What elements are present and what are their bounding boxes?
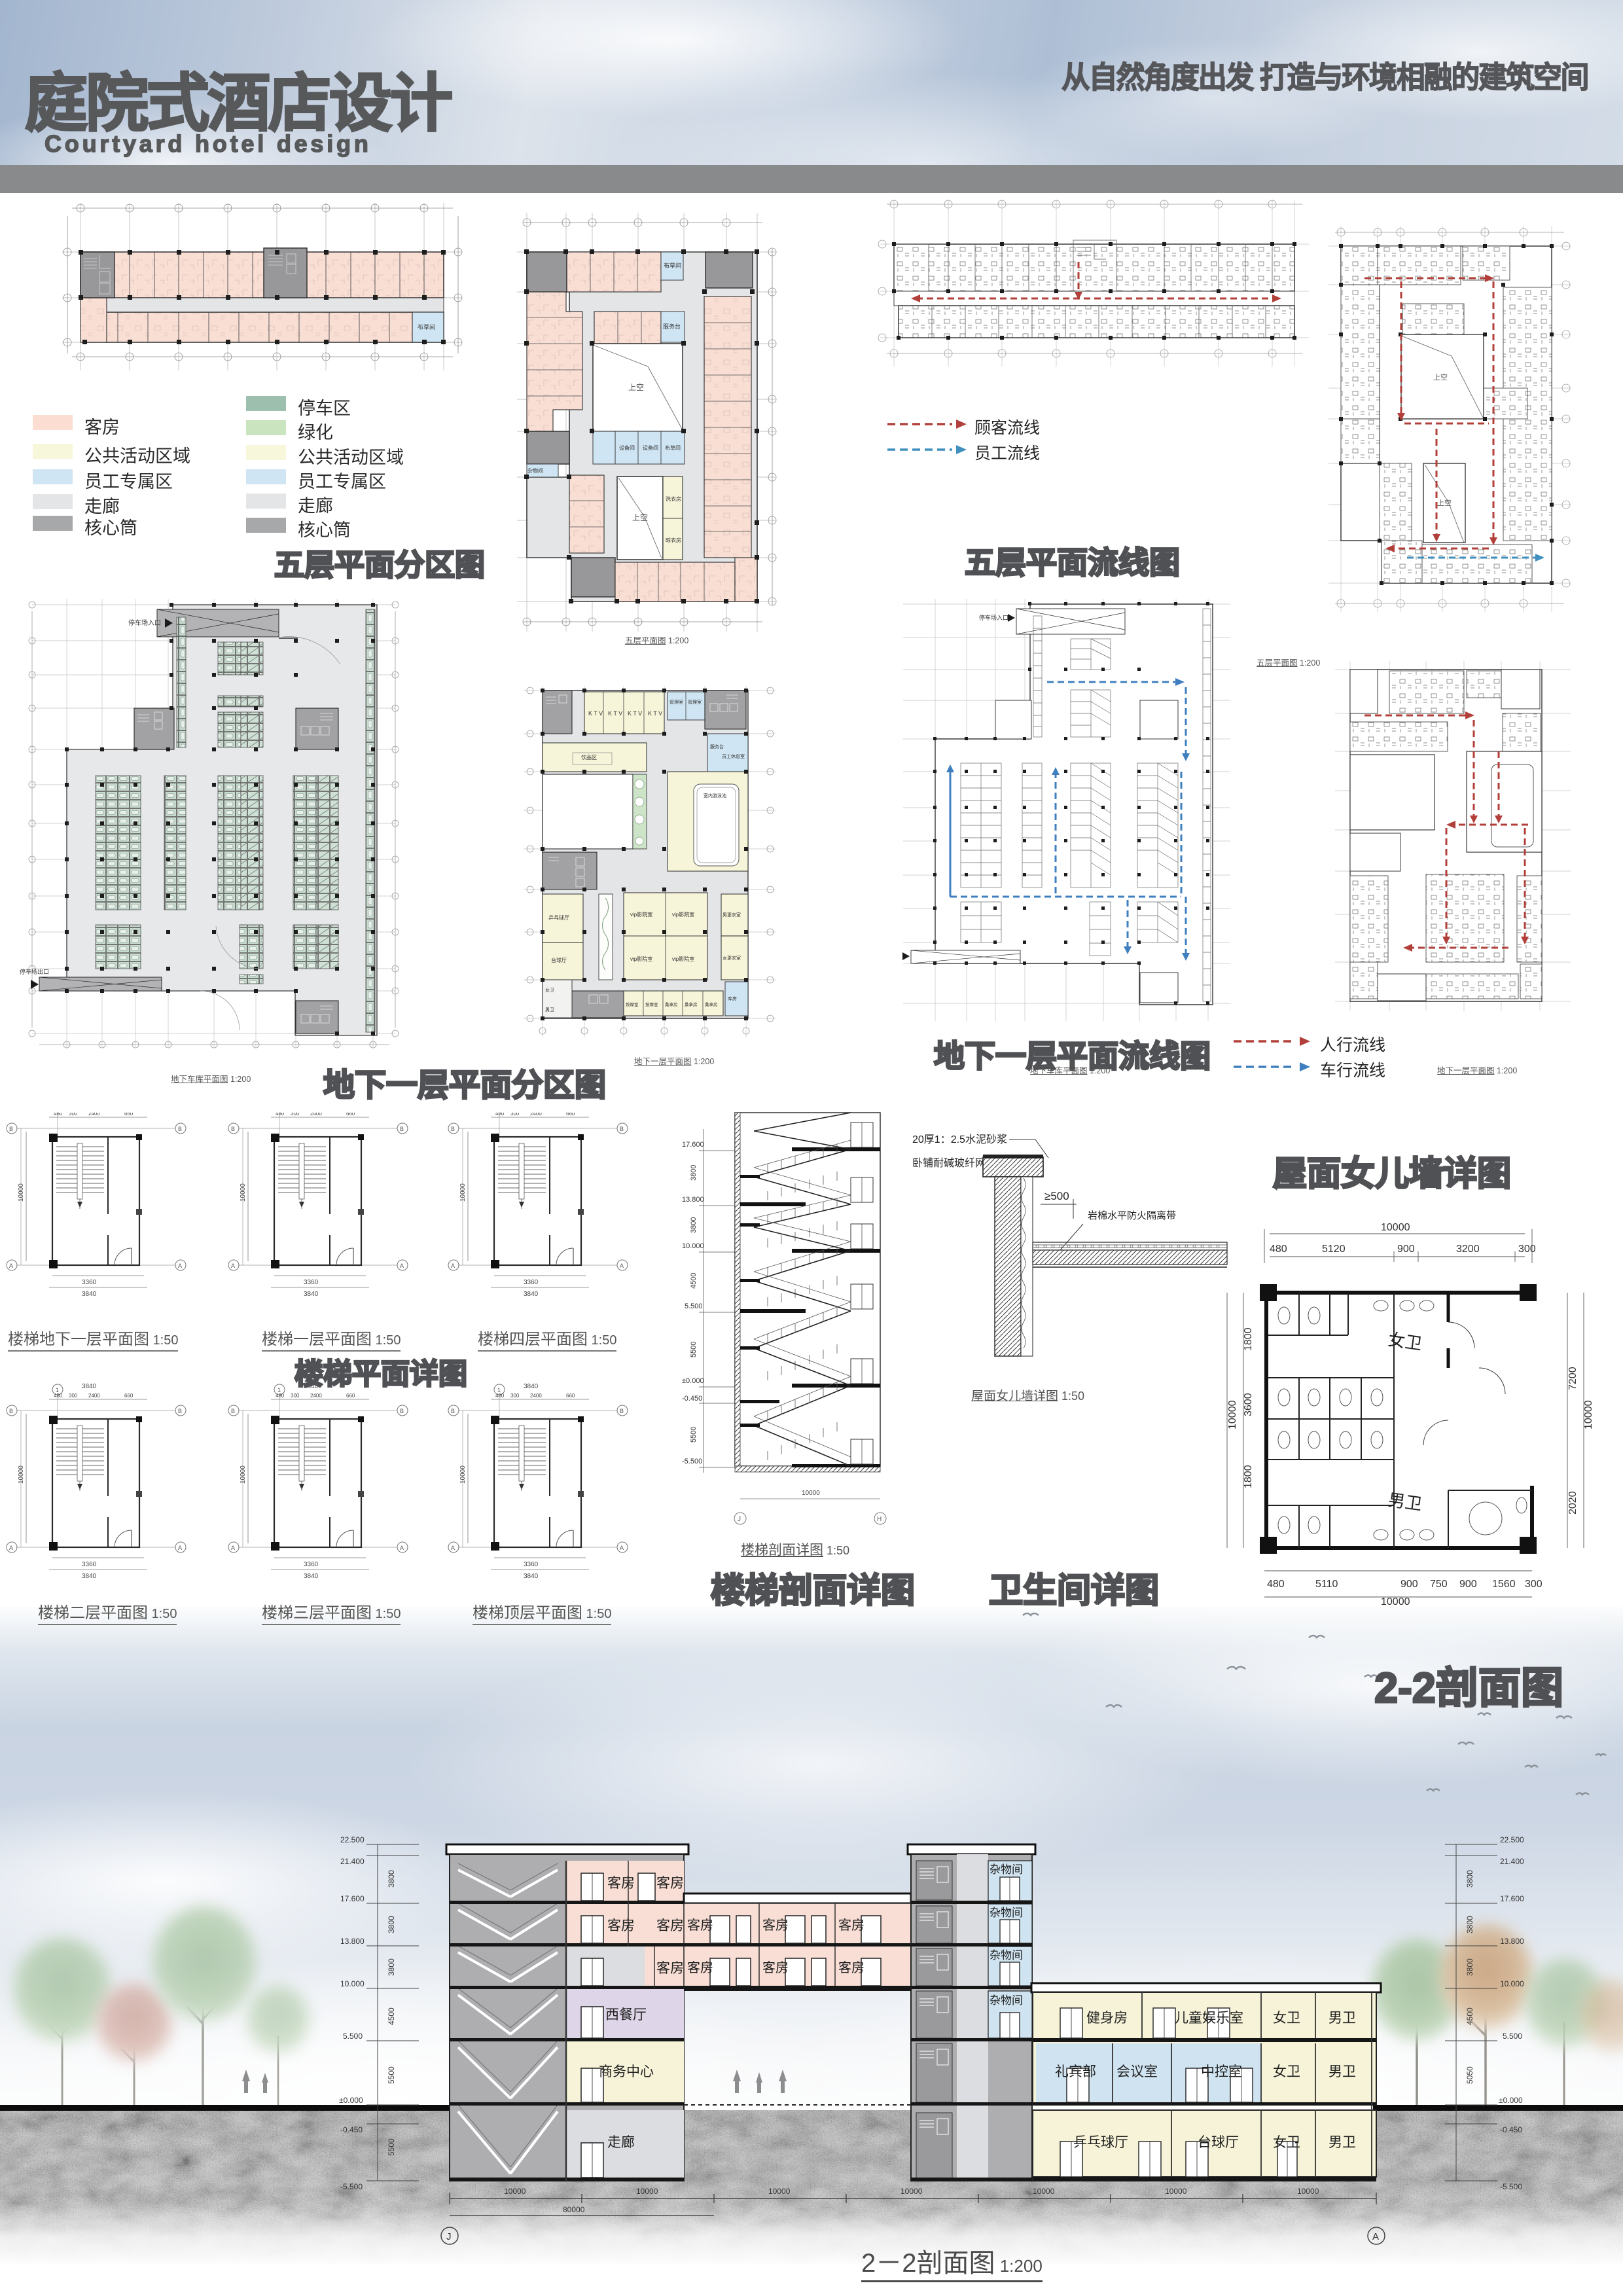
svg-text:2020: 2020	[1567, 1491, 1578, 1515]
svg-text:管理室: 管理室	[688, 699, 702, 705]
svg-text:1800: 1800	[1243, 1327, 1254, 1351]
svg-text:5.500: 5.500	[1503, 2032, 1522, 2041]
svg-text:21.400: 21.400	[340, 1857, 365, 1866]
svg-text:10000: 10000	[768, 2187, 791, 2196]
svg-text:客房: 客房	[838, 1960, 865, 1975]
svg-text:22.500: 22.500	[1500, 1835, 1524, 1844]
svg-text:客房: 客房	[656, 1876, 684, 1891]
svg-text:3800: 3800	[690, 1217, 698, 1233]
svg-text:17.600: 17.600	[1500, 1894, 1524, 1903]
svg-text:H: H	[877, 1516, 882, 1523]
svg-text:女更衣室: 女更衣室	[722, 955, 741, 961]
svg-text:杂物间: 杂物间	[990, 1949, 1023, 1962]
svg-text:客房: 客房	[838, 1918, 865, 1933]
svg-text:5.500: 5.500	[343, 2032, 363, 2041]
svg-text:女卫: 女卫	[545, 987, 554, 993]
svg-text:22.500: 22.500	[340, 1835, 365, 1844]
svg-text:西餐厅: 西餐厅	[605, 2007, 647, 2022]
svg-text:儿童娱乐室: 儿童娱乐室	[1175, 2011, 1243, 2026]
svg-text:女卫: 女卫	[1273, 2064, 1300, 2079]
svg-text:80000: 80000	[563, 2205, 585, 2214]
svg-text:5500: 5500	[387, 2066, 396, 2084]
svg-text:杂物间: 杂物间	[990, 1994, 1023, 2007]
svg-text:17.600: 17.600	[340, 1894, 365, 1903]
svg-text:男卫: 男卫	[1329, 2011, 1356, 2026]
svg-text:K T V: K T V	[628, 710, 642, 717]
svg-text:岩棉水平防火隔离带: 岩棉水平防火隔离带	[1088, 1210, 1176, 1221]
svg-text:按摩室: 按摩室	[626, 1001, 639, 1007]
svg-text:按摩室: 按摩室	[645, 1001, 658, 1007]
svg-text:10000: 10000	[802, 1490, 820, 1497]
svg-text:A: A	[1372, 2231, 1379, 2242]
svg-text:停车场出口: 停车场出口	[20, 968, 49, 975]
svg-text:K T V: K T V	[608, 710, 622, 717]
svg-text:5500: 5500	[690, 1427, 698, 1443]
svg-text:J: J	[738, 1516, 741, 1523]
svg-text:晾衣房: 晾衣房	[666, 537, 681, 543]
svg-text:管理室: 管理室	[669, 699, 683, 705]
svg-text:洗衣房: 洗衣房	[666, 495, 681, 502]
svg-text:3200: 3200	[1456, 1244, 1480, 1255]
svg-text:上空: 上空	[632, 513, 648, 522]
svg-text:≥500: ≥500	[1044, 1190, 1069, 1202]
svg-text:桑拿房: 桑拿房	[685, 1001, 698, 1007]
svg-text:±0.000: ±0.000	[682, 1377, 704, 1385]
svg-text:服务台: 服务台	[710, 744, 724, 749]
svg-text:10000: 10000	[1227, 1400, 1238, 1429]
svg-text:客房: 客房	[607, 1918, 635, 1933]
svg-text:-5.500: -5.500	[682, 1458, 702, 1465]
svg-text:桑拿房: 桑拿房	[665, 1001, 678, 1007]
svg-text:台球厅: 台球厅	[551, 957, 567, 963]
svg-text:礼宾部: 礼宾部	[1055, 2064, 1096, 2079]
svg-text:男卫: 男卫	[1387, 1490, 1423, 1514]
svg-text:-0.450: -0.450	[1500, 2125, 1522, 2134]
svg-text:10000: 10000	[636, 2187, 658, 2196]
svg-text:10.000: 10.000	[1500, 1979, 1524, 1988]
svg-text:21.400: 21.400	[1500, 1857, 1524, 1866]
svg-text:员工休息室: 员工休息室	[722, 753, 745, 759]
svg-text:3800: 3800	[387, 1958, 396, 1976]
svg-text:饮品区: 饮品区	[581, 754, 597, 761]
svg-text:杂物间: 杂物间	[990, 1907, 1023, 1919]
svg-text:480: 480	[1270, 1244, 1287, 1255]
svg-text:库房: 库房	[728, 996, 737, 1001]
svg-text:-0.450: -0.450	[682, 1395, 702, 1403]
svg-text:设备间: 设备间	[619, 444, 635, 451]
svg-text:5.500: 5.500	[685, 1302, 703, 1310]
svg-text:服务台: 服务台	[663, 323, 681, 330]
svg-text:±0.000: ±0.000	[1499, 2096, 1523, 2105]
svg-text:4500: 4500	[1465, 2007, 1474, 2025]
svg-text:1560: 1560	[1492, 1579, 1516, 1590]
svg-text:13.800: 13.800	[340, 1937, 365, 1946]
svg-text:13.800: 13.800	[1500, 1937, 1524, 1946]
svg-text:室内游泳池: 室内游泳池	[704, 793, 726, 798]
svg-text:10000: 10000	[1583, 1400, 1594, 1429]
svg-text:10.000: 10.000	[340, 1979, 365, 1988]
svg-text:男卫: 男卫	[545, 1007, 554, 1013]
svg-text:客房: 客房	[762, 1918, 789, 1933]
svg-text:3800: 3800	[690, 1165, 698, 1181]
svg-text:乒乓球厅: 乒乓球厅	[548, 914, 569, 921]
svg-text:停车场入口: 停车场入口	[128, 619, 161, 627]
svg-text:台球厅: 台球厅	[1198, 2135, 1239, 2150]
svg-text:5120: 5120	[1322, 1244, 1346, 1255]
svg-text:健身房: 健身房	[1086, 2011, 1128, 2026]
svg-text:上空: 上空	[628, 383, 644, 392]
svg-text:上空: 上空	[1437, 498, 1452, 507]
svg-text:10000: 10000	[1033, 2187, 1055, 2196]
svg-text:客房: 客房	[607, 1876, 635, 1891]
svg-text:杂物间: 杂物间	[527, 467, 543, 474]
svg-text:布草间: 布草间	[418, 323, 435, 331]
svg-text:20厚1：2.5水泥砂浆: 20厚1：2.5水泥砂浆	[912, 1134, 1007, 1145]
svg-text:17.600: 17.600	[682, 1141, 704, 1149]
svg-text:女卫: 女卫	[1387, 1329, 1423, 1354]
svg-text:K T V: K T V	[588, 710, 603, 717]
svg-text:4500: 4500	[387, 2007, 396, 2025]
svg-text:男卫: 男卫	[1329, 2064, 1356, 2079]
svg-text:J: J	[446, 2231, 452, 2242]
svg-text:300: 300	[1525, 1579, 1543, 1590]
svg-text:3800: 3800	[1465, 1870, 1474, 1888]
svg-text:设备间: 设备间	[643, 444, 658, 451]
svg-text:10000: 10000	[1381, 1222, 1410, 1233]
svg-text:3800: 3800	[387, 1870, 396, 1888]
svg-text:客房: 客房	[656, 1918, 684, 1933]
svg-text:1800: 1800	[1243, 1465, 1254, 1488]
svg-text:桑拿房: 桑拿房	[705, 1001, 718, 1007]
svg-text:480: 480	[1267, 1579, 1285, 1590]
svg-text:vip影院室: vip影院室	[630, 956, 652, 962]
svg-text:10000: 10000	[1165, 2187, 1187, 2196]
svg-text:5500: 5500	[690, 1342, 698, 1357]
svg-text:走廊: 走廊	[607, 2135, 635, 2150]
svg-text:-5.500: -5.500	[1500, 2182, 1522, 2191]
svg-text:vip影院室: vip影院室	[672, 956, 694, 962]
svg-text:3800: 3800	[387, 1916, 396, 1933]
svg-text:7200: 7200	[1567, 1367, 1578, 1390]
svg-text:男卫: 男卫	[1329, 2135, 1356, 2150]
svg-text:13.800: 13.800	[682, 1196, 704, 1204]
svg-text:女卫: 女卫	[1273, 2011, 1300, 2026]
svg-text:乒乓球厅: 乒乓球厅	[1073, 2135, 1128, 2150]
svg-text:900: 900	[1459, 1579, 1477, 1590]
svg-text:3800: 3800	[1465, 1916, 1474, 1933]
svg-text:5050: 5050	[1465, 2066, 1474, 2084]
svg-text:5500: 5500	[387, 2138, 396, 2156]
svg-text:客房: 客房	[656, 1961, 684, 1976]
svg-text:10000: 10000	[901, 2187, 923, 2196]
svg-text:-0.450: -0.450	[340, 2125, 363, 2134]
svg-text:布草间: 布草间	[665, 444, 681, 451]
svg-text:女卫: 女卫	[1273, 2135, 1300, 2150]
svg-text:900: 900	[1397, 1244, 1415, 1255]
svg-text:商务中心: 商务中心	[599, 2064, 654, 2079]
svg-text:布草间: 布草间	[664, 262, 681, 269]
svg-text:10.000: 10.000	[682, 1242, 704, 1250]
svg-text:会议室: 会议室	[1116, 2064, 1158, 2079]
svg-text:-5.500: -5.500	[340, 2182, 363, 2191]
svg-text:中控室: 中控室	[1201, 2064, 1242, 2079]
svg-text:5110: 5110	[1315, 1579, 1338, 1590]
svg-text:750: 750	[1430, 1579, 1448, 1590]
svg-text:vip影院室: vip影院室	[630, 911, 652, 918]
svg-text:4500: 4500	[690, 1273, 698, 1289]
svg-text:客房: 客房	[687, 1960, 713, 1975]
svg-text:300: 300	[1518, 1244, 1536, 1255]
svg-text:上空: 上空	[1433, 372, 1448, 382]
svg-text:客房: 客房	[687, 1918, 713, 1933]
svg-text:杂物间: 杂物间	[990, 1863, 1023, 1876]
svg-text:vip影院室: vip影院室	[672, 911, 694, 918]
svg-text:±0.000: ±0.000	[339, 2096, 363, 2105]
svg-text:10000: 10000	[1381, 1596, 1410, 1607]
svg-text:男更衣室: 男更衣室	[722, 912, 741, 918]
svg-text:3600: 3600	[1243, 1393, 1254, 1416]
svg-text:900: 900	[1400, 1579, 1418, 1590]
svg-text:客房: 客房	[762, 1960, 789, 1975]
svg-text:10000: 10000	[504, 2187, 526, 2196]
svg-text:停车场入口: 停车场入口	[979, 614, 1008, 621]
svg-text:10000: 10000	[1297, 2187, 1319, 2196]
svg-text:3800: 3800	[1465, 1958, 1474, 1976]
svg-text:K T V: K T V	[648, 710, 662, 717]
